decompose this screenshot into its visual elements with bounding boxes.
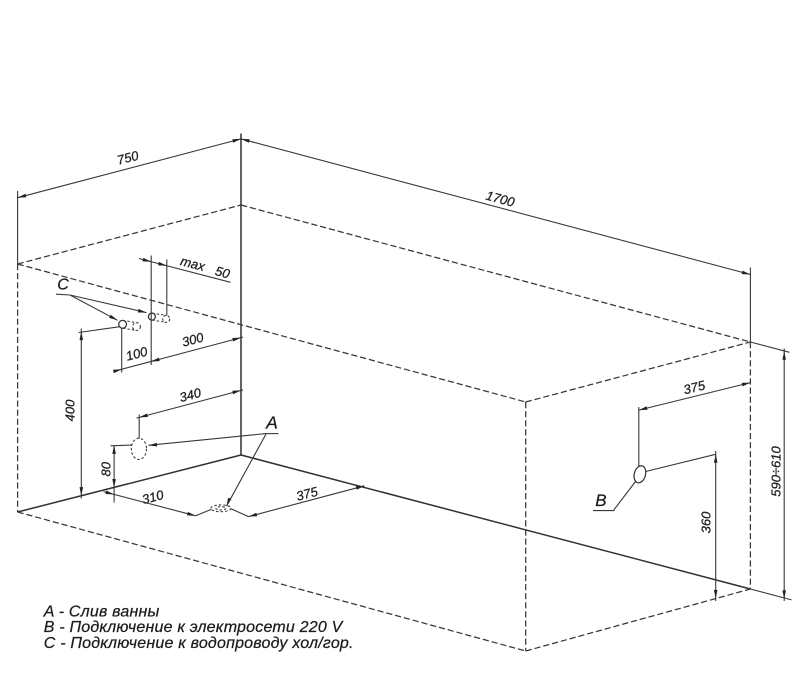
svg-text:400: 400 [63,399,78,421]
svg-text:590÷610: 590÷610 [769,445,784,496]
svg-text:C - Подключение к водопроводу: C - Подключение к водопроводу хол/гор. [44,635,354,652]
svg-text:360: 360 [698,511,713,533]
svg-text:A - Слив ванны: A - Слив ванны [43,604,160,621]
svg-text:B - Подключение к электросети: B - Подключение к электросети 220 V [44,619,344,636]
svg-text:C: C [57,277,69,294]
svg-text:80: 80 [99,461,114,476]
svg-text:B: B [595,491,606,510]
svg-text:A: A [265,413,278,433]
